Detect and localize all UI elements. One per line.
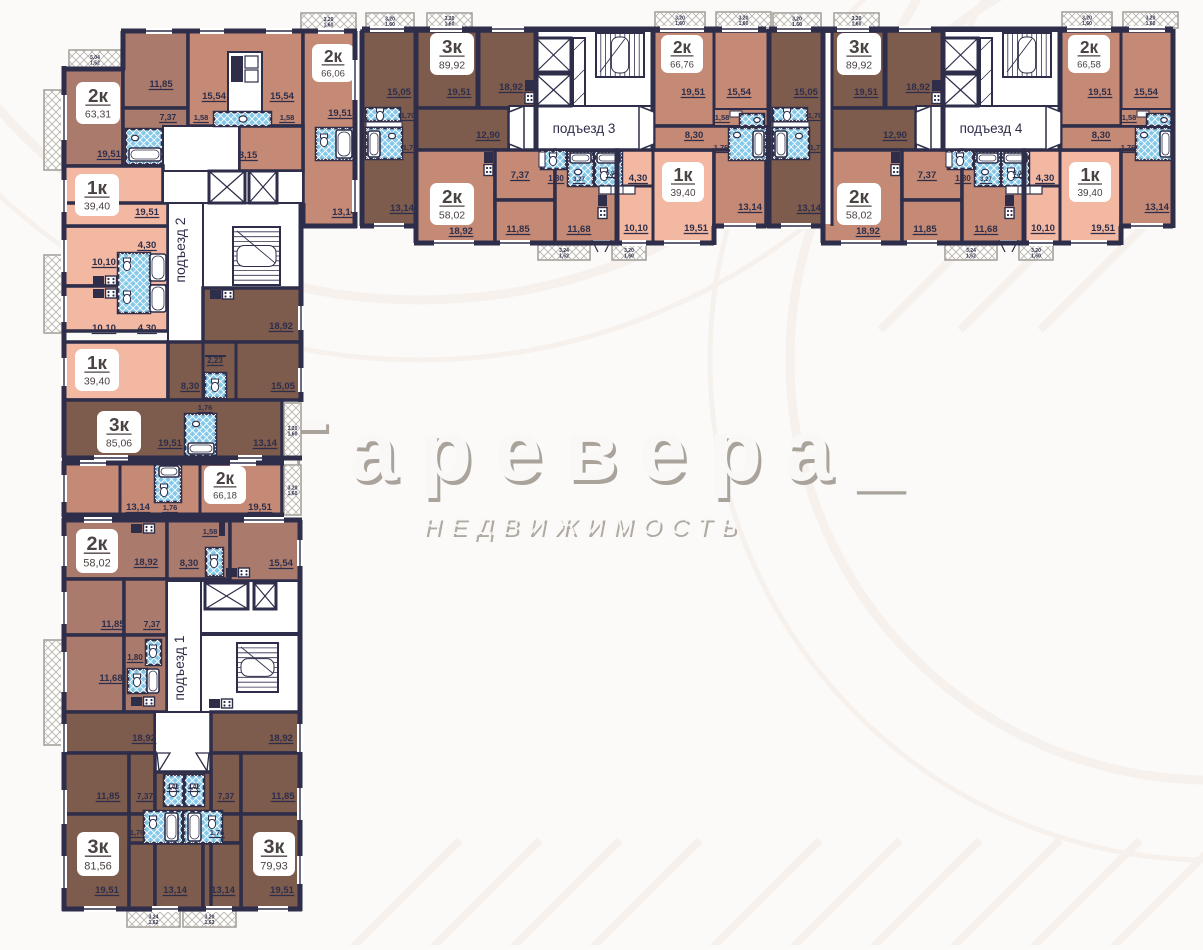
svg-text:66,18: 66,18 <box>213 490 237 501</box>
svg-text:1,80: 1,80 <box>548 174 564 183</box>
svg-text:8,15: 8,15 <box>239 150 258 161</box>
svg-text:66,76: 66,76 <box>670 59 694 70</box>
svg-text:1,76: 1,76 <box>163 503 178 512</box>
svg-text:1,62: 1,62 <box>559 254 569 260</box>
svg-text:66,58: 66,58 <box>1077 59 1101 70</box>
svg-text:10,10: 10,10 <box>92 257 116 268</box>
svg-text:1,58: 1,58 <box>280 113 295 122</box>
svg-text:2,23: 2,23 <box>207 356 223 365</box>
svg-text:1,60: 1,60 <box>324 23 334 29</box>
svg-text:10,10: 10,10 <box>624 223 648 234</box>
svg-text:19,51: 19,51 <box>95 885 119 896</box>
svg-text:11,68: 11,68 <box>974 224 997 235</box>
svg-text:3к: 3к <box>849 37 870 58</box>
svg-text:1,52: 1,52 <box>90 61 100 67</box>
svg-text:НЕДВИЖИМОСТЬ: НЕДВИЖИМОСТЬ <box>424 513 746 540</box>
svg-text:19,51: 19,51 <box>135 207 159 218</box>
svg-text:19,51: 19,51 <box>270 885 294 896</box>
svg-text:1,58: 1,58 <box>194 113 209 122</box>
svg-text:1,76: 1,76 <box>1121 143 1136 152</box>
svg-text:1,76: 1,76 <box>403 143 418 152</box>
svg-text:1,62: 1,62 <box>966 254 976 260</box>
svg-text:3к: 3к <box>442 37 463 58</box>
svg-text:81,56: 81,56 <box>84 860 112 872</box>
svg-text:7,37: 7,37 <box>144 619 161 629</box>
svg-text:39,40: 39,40 <box>670 188 695 199</box>
svg-text:39,40: 39,40 <box>84 201 110 213</box>
svg-text:2,02: 2,02 <box>188 785 200 791</box>
svg-text:4,30: 4,30 <box>138 240 157 251</box>
svg-text:18,92: 18,92 <box>499 82 523 93</box>
svg-text:1,60: 1,60 <box>288 432 298 438</box>
svg-text:19,51: 19,51 <box>97 149 121 160</box>
svg-text:13,14: 13,14 <box>738 202 762 213</box>
svg-text:2к: 2к <box>216 469 235 488</box>
svg-text:11,68: 11,68 <box>99 673 122 684</box>
svg-text:19,51: 19,51 <box>1091 223 1115 234</box>
svg-text:1,60: 1,60 <box>288 491 298 497</box>
svg-text:58,02: 58,02 <box>846 210 872 222</box>
svg-text:8,30: 8,30 <box>1092 130 1111 141</box>
svg-text:19,51: 19,51 <box>681 87 705 98</box>
svg-text:18,92: 18,92 <box>269 321 293 332</box>
svg-text:10,10: 10,10 <box>92 323 116 334</box>
svg-text:12,90: 12,90 <box>883 130 907 141</box>
svg-text:1,60: 1,60 <box>624 254 634 260</box>
svg-text:15,54: 15,54 <box>727 87 751 98</box>
svg-text:13,14: 13,14 <box>163 885 187 896</box>
svg-text:18,92: 18,92 <box>134 557 158 568</box>
svg-text:18,92: 18,92 <box>269 733 293 744</box>
svg-text:2к: 2к <box>1080 38 1099 57</box>
svg-text:1к: 1к <box>1080 165 1100 185</box>
svg-text:7,37: 7,37 <box>918 170 937 181</box>
svg-text:58,02: 58,02 <box>439 210 465 222</box>
svg-text:подъезд 2: подъезд 2 <box>172 217 188 282</box>
svg-text:2к: 2к <box>442 187 463 208</box>
svg-text:11,85: 11,85 <box>96 791 120 802</box>
svg-text:2к: 2к <box>673 38 692 57</box>
svg-text:1,58: 1,58 <box>715 113 730 122</box>
svg-text:2к: 2к <box>324 47 343 66</box>
svg-text:11,85: 11,85 <box>101 619 125 630</box>
svg-text:1,80: 1,80 <box>955 174 971 183</box>
svg-text:1,76: 1,76 <box>130 828 145 837</box>
svg-text:18,92: 18,92 <box>132 733 156 744</box>
svg-text:Гаревера_: Гаревера_ <box>279 403 925 499</box>
svg-text:1,76: 1,76 <box>810 143 825 152</box>
svg-text:19,51: 19,51 <box>1088 87 1112 98</box>
svg-text:85,06: 85,06 <box>106 438 132 450</box>
svg-text:4,30: 4,30 <box>629 173 648 184</box>
svg-text:1к: 1к <box>87 353 108 374</box>
svg-text:2,03: 2,03 <box>167 785 179 791</box>
svg-text:2к: 2к <box>88 86 109 107</box>
svg-text:1,63: 1,63 <box>205 920 215 926</box>
svg-text:4,30: 4,30 <box>138 323 157 334</box>
svg-text:8,30: 8,30 <box>180 558 199 569</box>
svg-text:19,51: 19,51 <box>158 438 182 449</box>
svg-text:3,27: 3,27 <box>573 177 585 183</box>
svg-text:18,92: 18,92 <box>449 226 473 237</box>
svg-text:1,58: 1,58 <box>203 527 218 536</box>
svg-text:19,51: 19,51 <box>447 87 471 98</box>
svg-text:19,51: 19,51 <box>248 502 272 513</box>
svg-text:39,40: 39,40 <box>84 376 110 388</box>
svg-text:подъезд 3: подъезд 3 <box>553 121 616 136</box>
svg-text:11,85: 11,85 <box>506 224 530 235</box>
svg-text:18,92: 18,92 <box>856 226 880 237</box>
svg-text:3к: 3к <box>264 836 285 858</box>
svg-text:13,14: 13,14 <box>797 203 821 214</box>
svg-text:8,30: 8,30 <box>685 130 704 141</box>
svg-text:1,76: 1,76 <box>198 403 213 412</box>
svg-text:7,37: 7,37 <box>160 112 177 122</box>
svg-text:подъезд 4: подъезд 4 <box>960 121 1023 136</box>
svg-text:1,58: 1,58 <box>1122 113 1137 122</box>
svg-text:10,10: 10,10 <box>1031 223 1055 234</box>
svg-text:66,06: 66,06 <box>321 68 345 79</box>
svg-text:15,05: 15,05 <box>271 381 295 392</box>
svg-text:13,14: 13,14 <box>1145 202 1169 213</box>
svg-text:58,02: 58,02 <box>83 557 111 569</box>
svg-text:12,90: 12,90 <box>476 130 500 141</box>
svg-text:63,31: 63,31 <box>85 109 111 121</box>
svg-text:подъезд 1: подъезд 1 <box>171 635 187 700</box>
svg-text:19,51: 19,51 <box>328 108 352 119</box>
svg-text:7,37: 7,37 <box>137 791 154 801</box>
svg-text:15,54: 15,54 <box>202 91 226 102</box>
svg-text:4,30: 4,30 <box>1036 173 1055 184</box>
svg-text:11,85: 11,85 <box>913 224 937 235</box>
svg-text:1,70: 1,70 <box>401 111 416 120</box>
svg-text:13,14: 13,14 <box>211 885 235 896</box>
svg-text:79,93: 79,93 <box>260 860 288 872</box>
svg-text:1,76: 1,76 <box>210 828 225 837</box>
svg-text:18,92: 18,92 <box>906 82 930 93</box>
svg-text:39,40: 39,40 <box>1077 188 1102 199</box>
svg-text:1,60: 1,60 <box>1031 254 1041 260</box>
svg-text:7,37: 7,37 <box>511 170 530 181</box>
svg-text:15,54: 15,54 <box>1134 87 1158 98</box>
svg-text:3к: 3к <box>109 415 130 436</box>
svg-text:3к: 3к <box>88 836 109 858</box>
svg-text:7,37: 7,37 <box>218 791 235 801</box>
svg-text:11,85: 11,85 <box>271 791 295 802</box>
svg-text:8,30: 8,30 <box>181 381 200 392</box>
svg-text:1,70: 1,70 <box>808 111 823 120</box>
svg-text:13,14: 13,14 <box>390 203 414 214</box>
svg-text:15,54: 15,54 <box>269 558 293 569</box>
svg-text:89,92: 89,92 <box>846 60 872 72</box>
svg-text:1к: 1к <box>87 178 108 199</box>
svg-text:13,14: 13,14 <box>126 502 150 513</box>
svg-text:1,76: 1,76 <box>714 143 729 152</box>
svg-text:19,51: 19,51 <box>684 223 708 234</box>
svg-text:11,68: 11,68 <box>567 224 590 235</box>
svg-text:89,92: 89,92 <box>439 60 465 72</box>
svg-text:19,51: 19,51 <box>854 87 878 98</box>
svg-text:2к: 2к <box>849 187 870 208</box>
svg-text:15,54: 15,54 <box>270 91 294 102</box>
svg-text:2к: 2к <box>87 533 108 555</box>
svg-text:11,85: 11,85 <box>149 79 173 90</box>
svg-text:1,80: 1,80 <box>127 653 143 662</box>
svg-text:15,05: 15,05 <box>794 87 818 98</box>
svg-text:1,62: 1,62 <box>149 920 159 926</box>
svg-text:13,14: 13,14 <box>253 438 277 449</box>
svg-text:1к: 1к <box>673 165 693 185</box>
svg-text:3,27: 3,27 <box>980 177 992 183</box>
svg-text:15,05: 15,05 <box>387 87 411 98</box>
